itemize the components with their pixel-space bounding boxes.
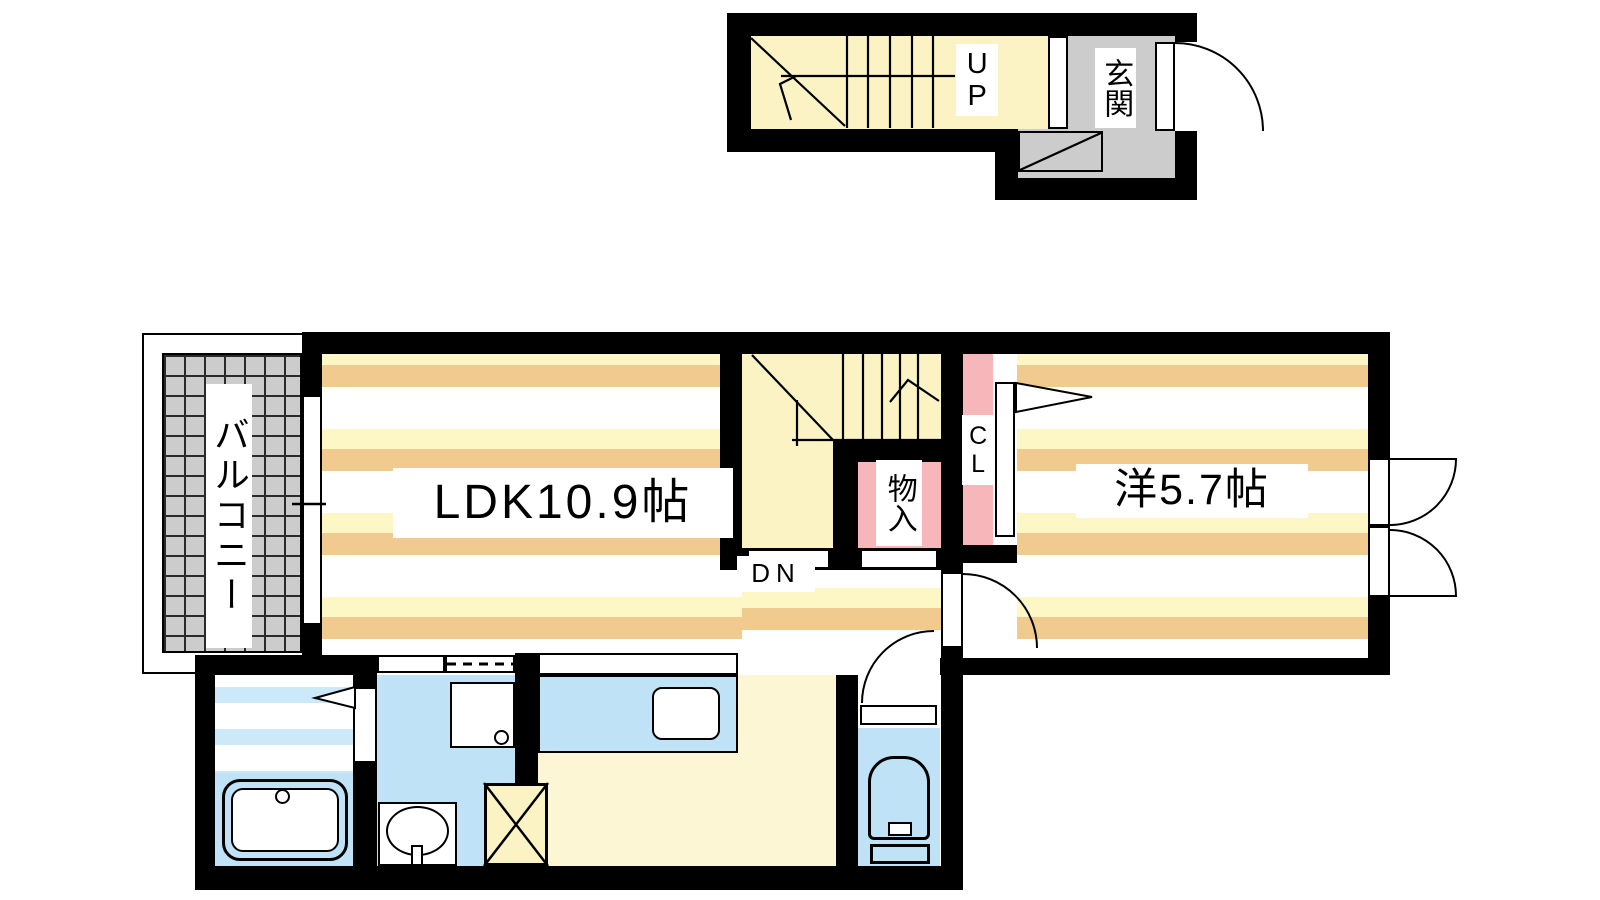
kitchen-sink bbox=[652, 687, 720, 740]
western-door-leaf bbox=[941, 572, 963, 648]
wall-segment bbox=[195, 655, 377, 675]
wall-segment bbox=[195, 655, 215, 890]
wall-segment bbox=[727, 129, 1018, 152]
kitchen-counter-top bbox=[538, 653, 738, 675]
casement-window-bottom bbox=[1390, 530, 1456, 596]
stairs-up-floor bbox=[751, 36, 1048, 129]
bathroom-floor bbox=[215, 675, 353, 773]
closet-label: CL bbox=[962, 415, 994, 485]
closet-label-text: CL bbox=[965, 422, 991, 478]
storage-label: 物入 bbox=[876, 460, 922, 546]
stairs-down-floor bbox=[742, 354, 942, 440]
front-door-leaf bbox=[1155, 42, 1175, 131]
western-window-top bbox=[1368, 458, 1390, 526]
storage-door-opening bbox=[860, 549, 938, 569]
bathtub-drain bbox=[275, 789, 290, 804]
wall-segment bbox=[940, 658, 1390, 675]
wall-segment bbox=[302, 332, 322, 395]
ldk-room-label-text: LDK10.9帖 bbox=[434, 478, 693, 528]
wall-segment bbox=[515, 653, 538, 783]
washbasin-faucet bbox=[411, 845, 423, 866]
front-door-opening bbox=[1175, 42, 1197, 131]
stairs-up-label: UP bbox=[956, 44, 998, 116]
floor-plan: LDK10.9帖 洋5.7帖 バルコニー CL 物入 DN UP 玄関 bbox=[0, 0, 1600, 900]
wall-segment bbox=[302, 332, 1390, 354]
storage-label-text: 物入 bbox=[883, 473, 915, 533]
entrance-label: 玄関 bbox=[1095, 48, 1136, 128]
entrance-partition-opening bbox=[1048, 36, 1068, 129]
washroom-door-opening bbox=[377, 655, 445, 673]
wall-segment bbox=[995, 178, 1197, 200]
ldk-room-label: LDK10.9帖 bbox=[393, 468, 733, 538]
wall-segment bbox=[727, 13, 1197, 36]
wall-segment bbox=[836, 675, 858, 890]
balcony-window bbox=[302, 395, 322, 625]
refrigerator-space bbox=[484, 783, 548, 866]
washing-machine-drain bbox=[494, 730, 509, 745]
balcony-label-text: バルコニー bbox=[210, 416, 248, 616]
stairs-up-label-text: UP bbox=[962, 48, 992, 112]
western-room-label-text: 洋5.7帖 bbox=[1114, 468, 1270, 513]
stairs-down-label-text: DN bbox=[751, 560, 801, 587]
western-room-label: 洋5.7帖 bbox=[1076, 464, 1308, 518]
shoe-cabinet bbox=[1018, 131, 1103, 172]
wall-segment bbox=[833, 440, 942, 462]
western-window-bottom bbox=[1368, 526, 1390, 597]
balcony-label: バルコニー bbox=[206, 384, 252, 648]
toilet-tank bbox=[870, 844, 930, 864]
bathroom-door-leaf bbox=[353, 687, 377, 763]
stairs-landing-floor bbox=[742, 440, 833, 548]
closet-door-leaf bbox=[995, 382, 1015, 537]
toilet-door-leaf bbox=[860, 705, 937, 725]
entrance-label-text: 玄関 bbox=[1100, 58, 1132, 118]
stairs-down-label: DN bbox=[737, 556, 815, 592]
wall-segment bbox=[941, 545, 1017, 563]
casement-window-top bbox=[1390, 459, 1456, 525]
toilet-seat-hinge bbox=[888, 822, 912, 836]
washroom-sliding-opening bbox=[445, 655, 515, 673]
